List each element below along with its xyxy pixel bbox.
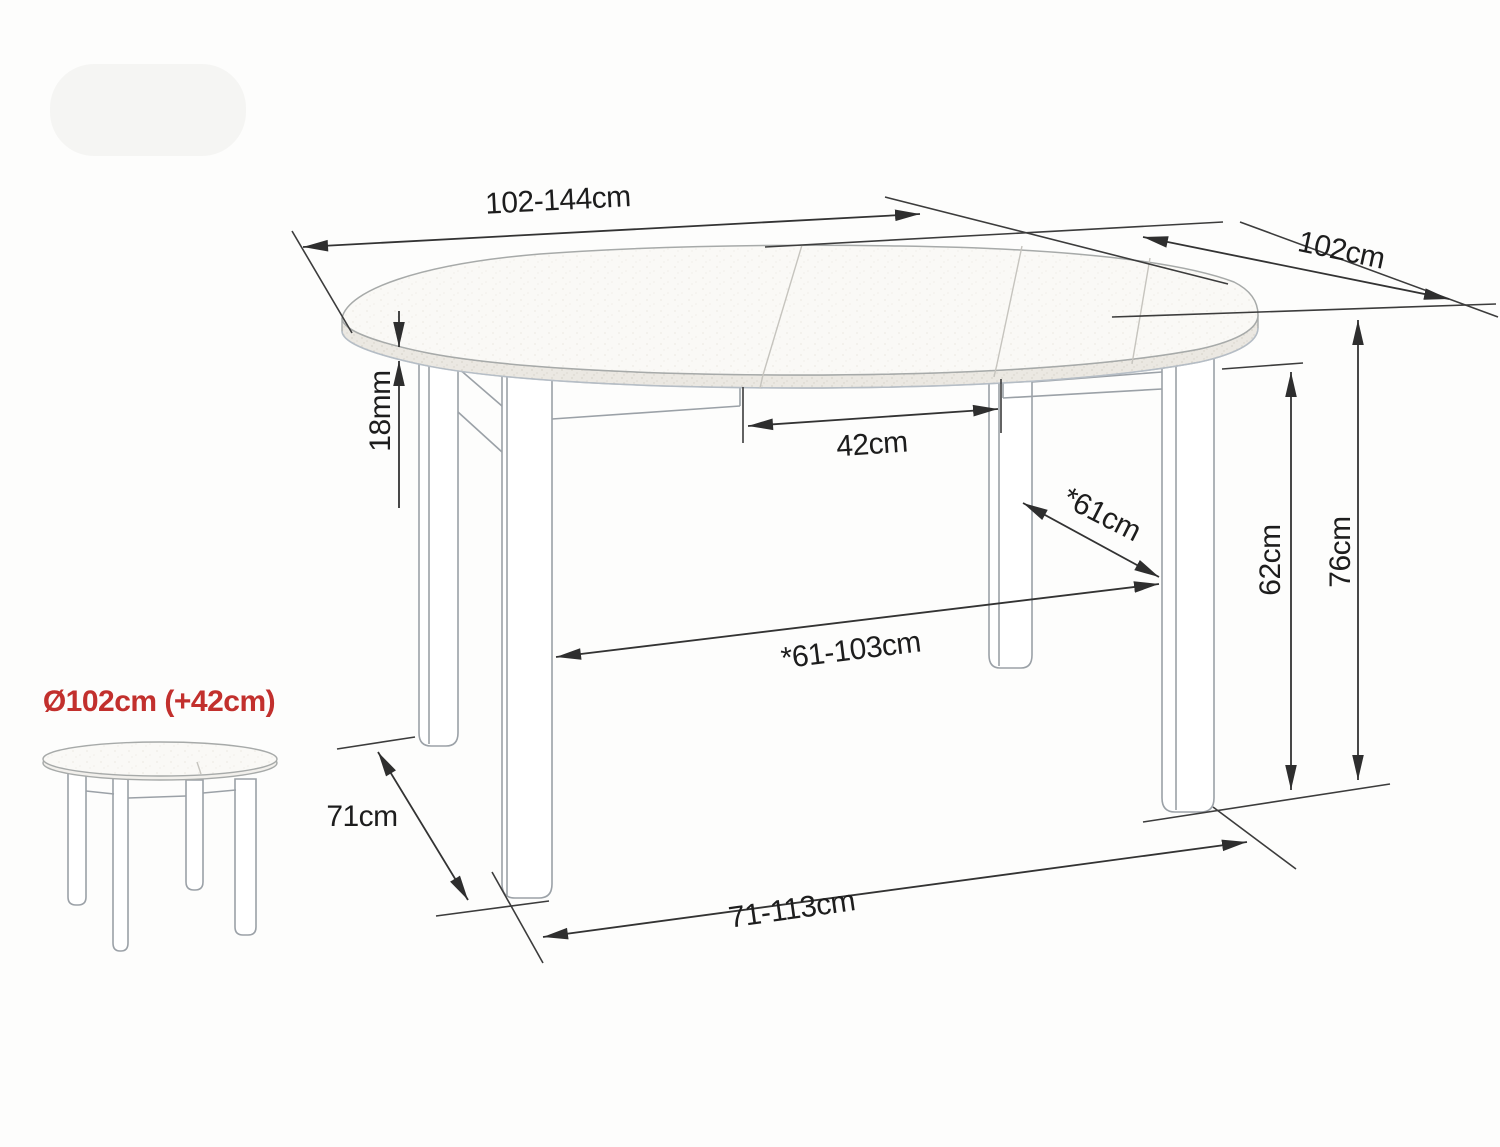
inset-diameter-label: Ø102cm (+42cm) <box>43 685 275 718</box>
dimension-diagram: Ø102cm (+42cm) 102-144cm 102cm 18mm 42cm… <box>0 0 1500 1147</box>
dimension-leg-span-length: *61-103cm <box>556 584 1159 675</box>
leg-front-left <box>502 360 552 898</box>
top-depth-label: 102cm <box>1295 225 1387 275</box>
ghost-watermark-blob <box>50 64 246 156</box>
inset-legs <box>68 773 256 951</box>
top-length-label: 102-144cm <box>484 180 631 221</box>
leg-span-length-label: *61-103cm <box>779 625 923 675</box>
diagram-canvas: Ø102cm (+42cm) 102-144cm 102cm 18mm 42cm… <box>0 0 1500 1147</box>
base-depth-label: 71cm <box>326 800 397 833</box>
leg-back-left <box>419 352 458 746</box>
inset-closed-table-drawing: Ø102cm (+42cm) <box>43 685 277 951</box>
leaf-width-label: 42cm <box>835 425 908 463</box>
underframe-clearance-label: 62cm <box>1254 524 1287 595</box>
base-length-label: 71-113cm <box>727 884 858 934</box>
main-table-drawing <box>342 245 1258 898</box>
dimension-base-length: 71-113cm <box>492 807 1296 963</box>
dimension-leaf-width: 42cm <box>743 379 1001 463</box>
inset-tabletop <box>43 742 277 780</box>
leg-front-right <box>1162 330 1214 812</box>
leg-span-diagonal-label: *61cm <box>1057 481 1146 548</box>
tabletop-surface <box>342 245 1258 375</box>
inset-aprons <box>86 790 236 798</box>
table-height-label: 76cm <box>1324 516 1357 587</box>
dimension-leg-span-diagonal: *61cm <box>1023 481 1159 577</box>
top-thickness-label: 18mm <box>364 370 397 451</box>
leg-back-right <box>989 344 1032 668</box>
dimension-underframe-clearance: 62cm <box>1222 363 1303 790</box>
